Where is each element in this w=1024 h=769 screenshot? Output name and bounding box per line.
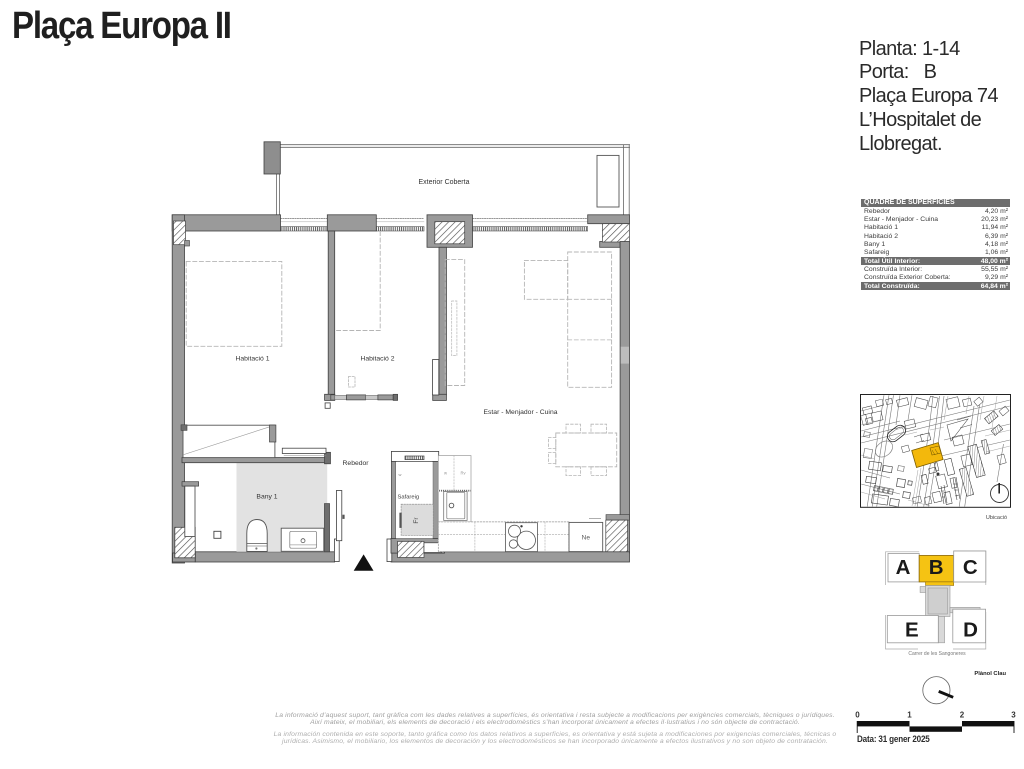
svg-text:D: D xyxy=(963,618,978,641)
svg-text:Fr: Fr xyxy=(413,517,420,524)
svg-text:2: 2 xyxy=(960,711,965,720)
svg-text:0: 0 xyxy=(855,711,860,720)
svg-text:Carrer de les Sangoneres: Carrer de les Sangoneres xyxy=(908,651,966,657)
svg-text:Ne: Ne xyxy=(582,534,591,541)
svg-text:Rebedor: Rebedor xyxy=(343,460,370,467)
svg-text:Safareig: Safareig xyxy=(398,495,420,501)
svg-text:B: B xyxy=(929,556,944,579)
svg-text:Habitació 2: Habitació 2 xyxy=(360,356,394,363)
svg-text:1: 1 xyxy=(907,711,912,720)
svg-text:Habitació 1: Habitació 1 xyxy=(235,356,269,363)
svg-text:Bany 1: Bany 1 xyxy=(256,494,277,501)
svg-text:A: A xyxy=(896,556,911,579)
svg-text:Rv: Rv xyxy=(461,471,467,476)
svg-text:E: E xyxy=(905,618,919,641)
svg-text:3: 3 xyxy=(1011,711,1016,720)
svg-text:C: C xyxy=(963,556,978,579)
svg-text:Exterior Coberta: Exterior Coberta xyxy=(419,179,470,186)
svg-text:w: w xyxy=(399,472,402,477)
svg-text:Estar - Menjador - Cuina: Estar - Menjador - Cuina xyxy=(483,409,557,416)
